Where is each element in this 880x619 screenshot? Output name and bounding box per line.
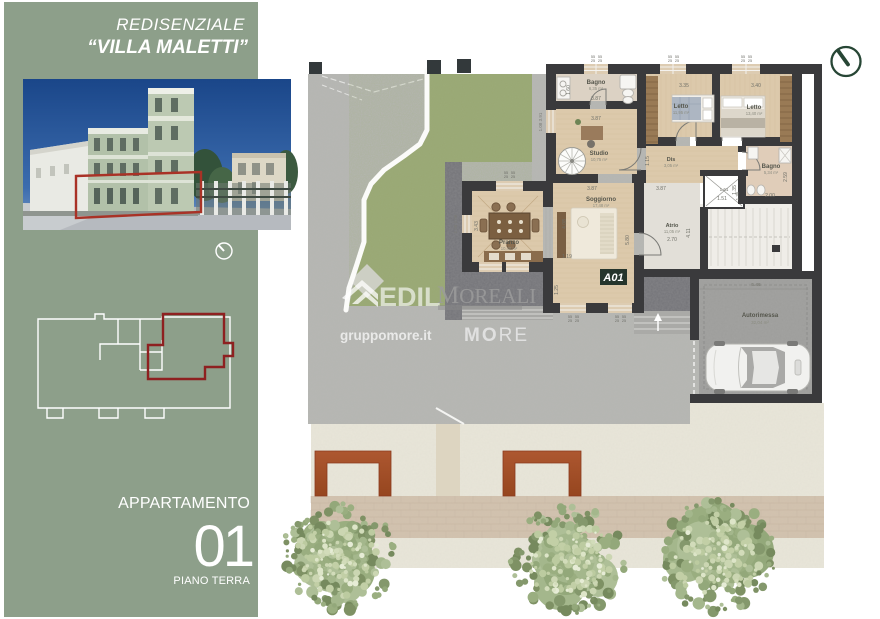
svg-text:10,40 m²: 10,40 m² [501,246,518,251]
svg-text:25: 25 [575,319,579,323]
svg-text:25: 25 [741,59,745,63]
svg-text:2.00: 2.00 [765,193,775,199]
svg-text:17,48 m²: 17,48 m² [593,203,610,208]
svg-text:5,34 m²: 5,34 m² [764,170,779,175]
svg-text:1.61: 1.61 [720,187,729,192]
svg-text:A01: A01 [602,272,623,284]
svg-text:1.35: 1.35 [735,191,740,200]
svg-text:4.08: 4.08 [562,219,568,229]
svg-text:3.87: 3.87 [656,186,666,192]
svg-text:11,95 m²: 11,95 m² [673,110,690,115]
svg-text:3.87: 3.87 [591,96,601,102]
svg-text:13,40 m²: 13,40 m² [746,111,763,116]
svg-text:REDISENZIALE: REDISENZIALE [116,15,245,34]
svg-text:3.87: 3.87 [587,186,597,192]
svg-text:25: 25 [748,59,752,63]
svg-text:5.46: 5.46 [751,282,761,288]
svg-text:1.25: 1.25 [554,285,560,295]
svg-text:“VILLA MALETTI”: “VILLA MALETTI” [87,37,248,58]
svg-text:APPARTAMENTO: APPARTAMENTO [118,495,250,512]
svg-text:1.60: 1.60 [566,85,572,95]
svg-text:3.35: 3.35 [679,83,689,89]
svg-text:2.59: 2.59 [783,172,789,182]
svg-text:MOREALI: MOREALI [437,282,536,309]
svg-text:MORE: MORE [464,325,529,346]
svg-text:1.51: 1.51 [717,196,727,202]
svg-text:32,04 m²: 32,04 m² [751,320,769,325]
svg-text:25: 25 [568,319,572,323]
svg-text:25: 25 [504,175,508,179]
svg-text:10,75 m²: 10,75 m² [591,157,608,162]
svg-text:25: 25 [675,59,679,63]
svg-text:3,05 m²: 3,05 m² [664,163,679,168]
svg-text:gruppomore.it: gruppomore.it [340,328,432,343]
svg-text:6,35 m²: 6,35 m² [589,86,604,91]
svg-text:25: 25 [511,175,515,179]
svg-text:1.08 3.91: 1.08 3.91 [538,112,543,131]
svg-text:2.70: 2.70 [667,237,677,243]
svg-text:3.43: 3.43 [474,221,480,231]
svg-text:11,05 m²: 11,05 m² [664,229,681,234]
svg-text:01: 01 [193,514,252,579]
svg-text:25: 25 [615,319,619,323]
svg-text:5.80: 5.80 [625,235,631,245]
svg-text:3.87: 3.87 [591,116,601,122]
svg-text:25: 25 [668,59,672,63]
svg-text:1.19: 1.19 [562,254,572,260]
svg-text:1.15: 1.15 [645,156,651,166]
svg-text:25: 25 [622,319,626,323]
svg-text:Autorimessa: Autorimessa [742,313,779,319]
svg-text:4.11: 4.11 [686,228,692,238]
svg-text:25: 25 [598,59,602,63]
svg-text:PIANO TERRA: PIANO TERRA [173,575,250,587]
svg-text:EDIL: EDIL [379,282,441,312]
svg-text:3.40: 3.40 [751,83,761,89]
svg-text:1.08 2.06: 1.08 2.06 [453,214,458,233]
svg-text:25: 25 [591,59,595,63]
